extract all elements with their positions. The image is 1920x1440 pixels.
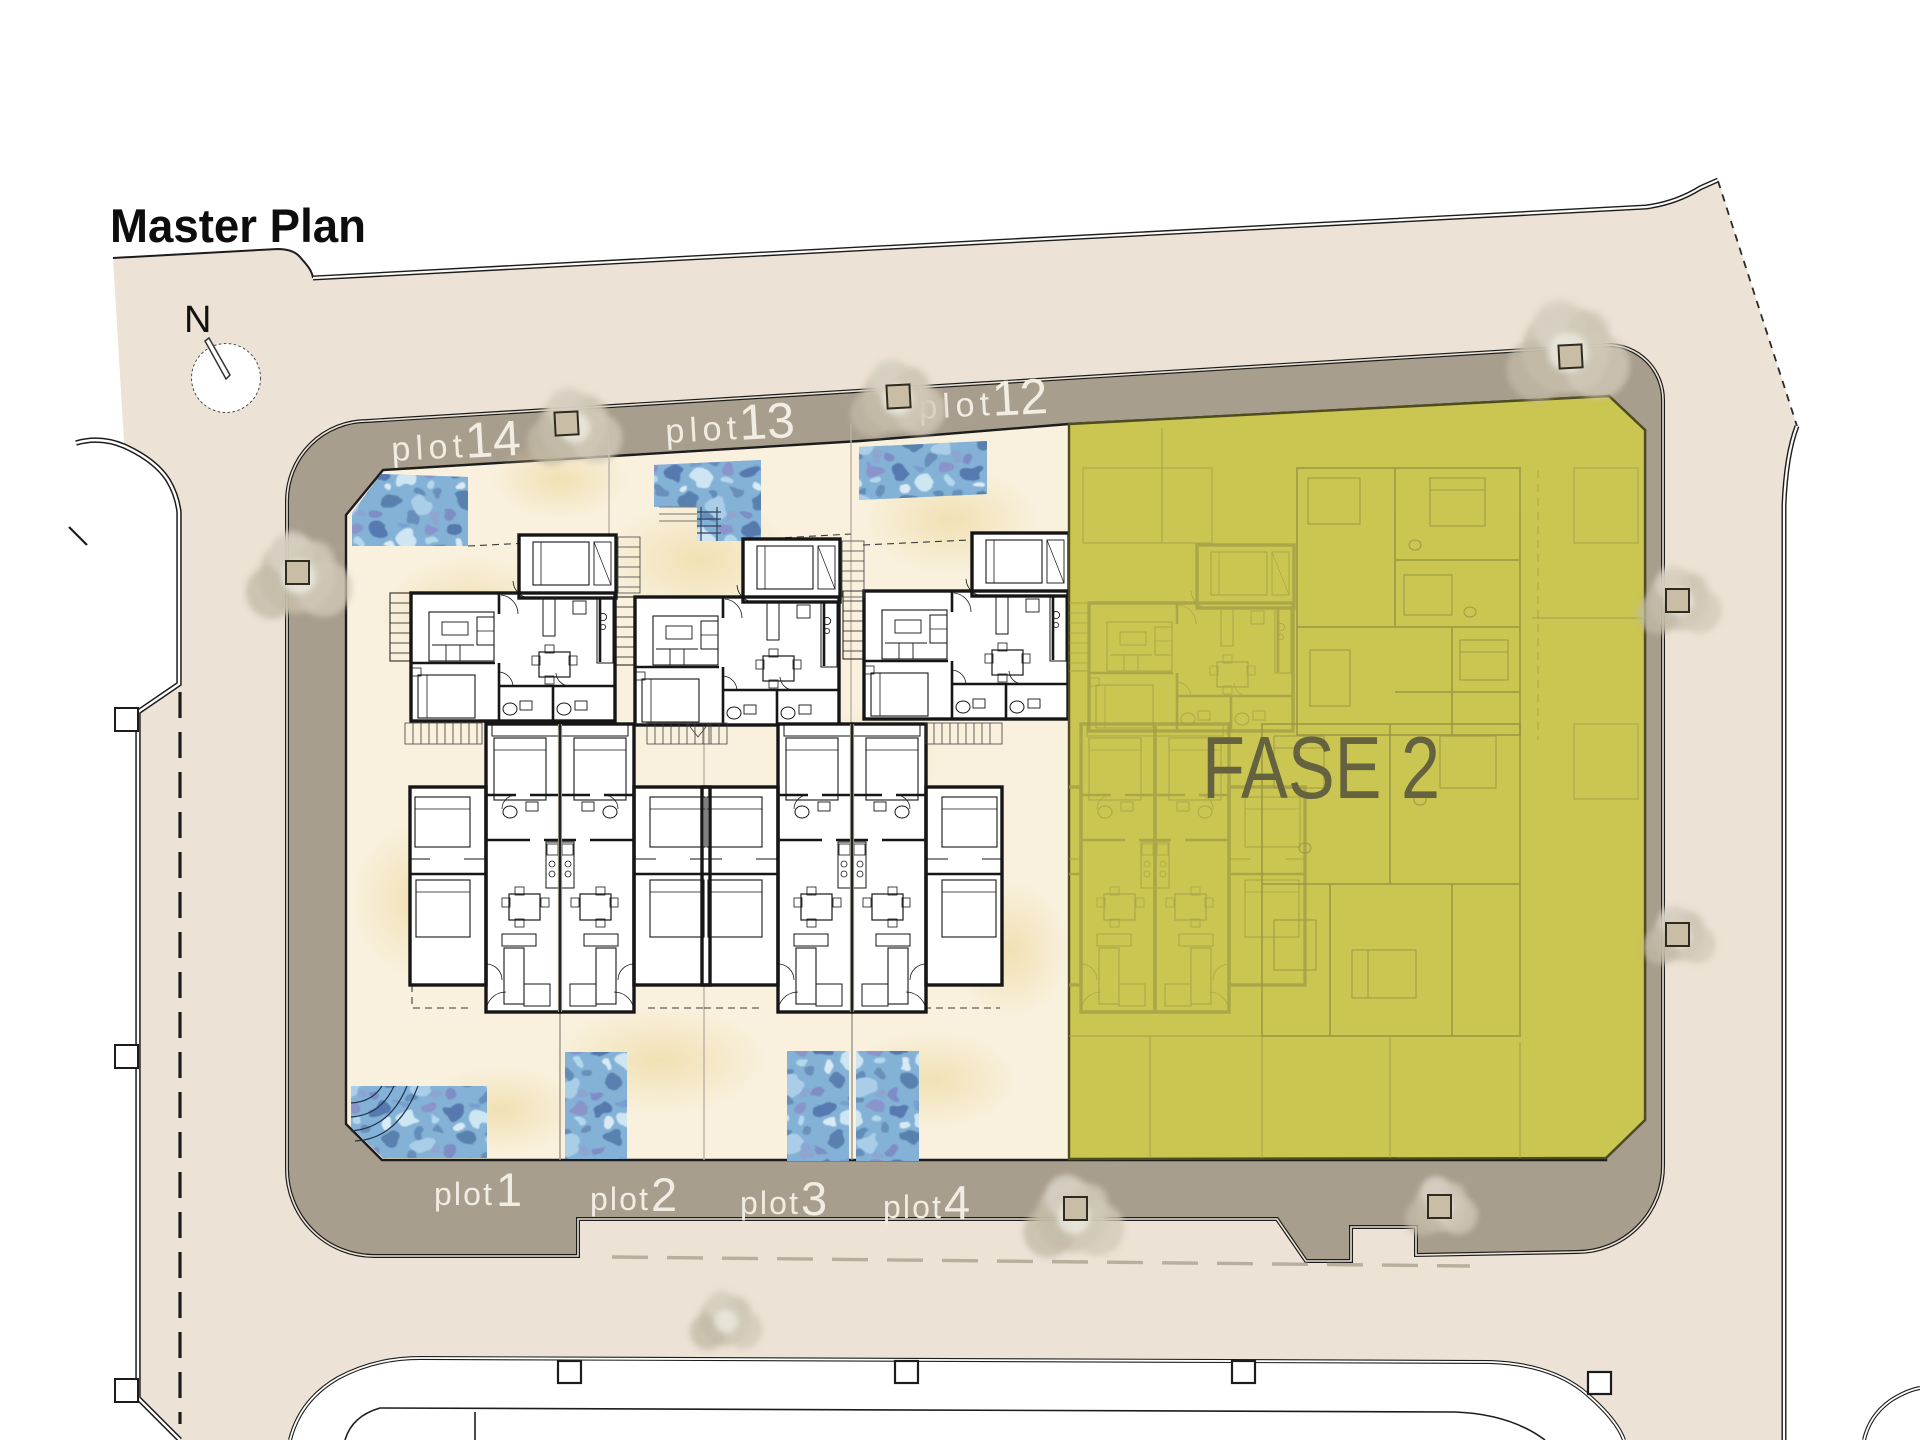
svg-text:13: 13 — [737, 392, 796, 451]
svg-text:4: 4 — [944, 1176, 970, 1229]
svg-text:1: 1 — [496, 1163, 522, 1216]
svg-text:N: N — [184, 299, 211, 341]
svg-text:plot: plot — [740, 1185, 798, 1221]
svg-text:plot: plot — [434, 1176, 492, 1212]
svg-text:plot: plot — [590, 1181, 648, 1217]
svg-text:3: 3 — [801, 1172, 827, 1225]
svg-text:14: 14 — [463, 410, 522, 469]
svg-text:FASE 2: FASE 2 — [1202, 718, 1440, 817]
svg-text:Master Plan: Master Plan — [110, 199, 366, 252]
svg-text:12: 12 — [990, 368, 1049, 427]
svg-text:2: 2 — [651, 1168, 677, 1221]
svg-text:plot: plot — [883, 1189, 941, 1225]
